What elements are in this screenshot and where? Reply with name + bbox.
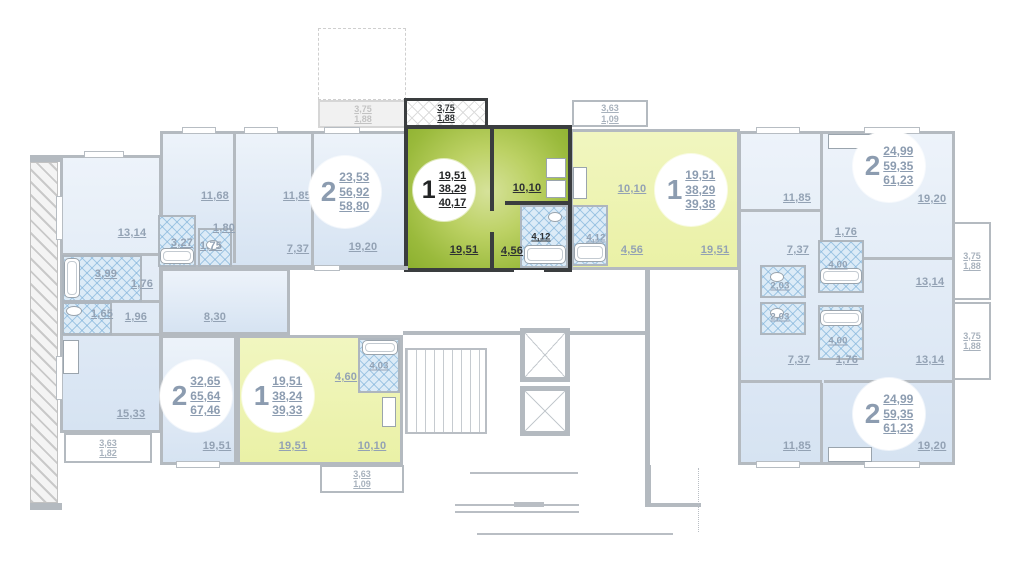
balcony-top-mid: 3,63 1,09 <box>572 100 648 127</box>
window <box>84 151 124 158</box>
balcony-left: 3,63 1,82 <box>64 433 152 463</box>
area-value: 58,80 <box>339 199 369 214</box>
area-value: 23,53 <box>339 170 369 185</box>
area-value: 19,51 <box>685 168 715 183</box>
window <box>756 461 800 468</box>
kitchen-unit <box>382 397 396 427</box>
area-value: 38,29 <box>685 183 715 198</box>
balcony-area-label: 1,88 <box>437 113 455 123</box>
area-label: 2,03 <box>770 281 789 292</box>
entrance-steps <box>477 533 673 535</box>
area-label: 10,10 <box>618 183 647 195</box>
bathtub-selected <box>524 245 566 264</box>
area-label: 1,76 <box>131 278 153 290</box>
area-label: 11,85 <box>783 192 811 204</box>
wall-segment-dark <box>490 129 494 211</box>
wall-segment <box>740 380 822 383</box>
area-label: 11,68 <box>201 190 229 202</box>
window <box>56 356 63 400</box>
wall-segment <box>645 268 650 465</box>
toilet <box>66 306 82 316</box>
area-label: 19,51 <box>279 440 308 452</box>
area-label: 7,37 <box>787 244 809 256</box>
balcony-right-bottom: 3,75 1,88 <box>953 302 991 380</box>
wall-segment-dark <box>490 232 494 268</box>
entrance-wall <box>645 465 651 507</box>
entrance-steps <box>470 472 578 474</box>
area-value: 59,35 <box>883 407 913 422</box>
area-label: 4,03 <box>369 361 388 372</box>
area-value: 67,46 <box>190 403 220 418</box>
area-label-selected: 19,51 <box>450 244 479 256</box>
area-label: 1,75 <box>200 240 222 252</box>
area-label: 4,56 <box>621 244 643 256</box>
floor-plan: 3,63 1,82 3,75 1,88 3,75 1,88 3,63 1,09 … <box>0 0 1024 569</box>
balcony-bottom: 3,63 1,09 <box>320 465 404 493</box>
area-label: 10,10 <box>358 440 387 452</box>
entrance-steps <box>455 511 579 513</box>
balcony-area-label: 1,88 <box>963 341 981 351</box>
apartment-badge-mid[interactable]: 1 19,51 38,29 39,38 <box>655 154 727 226</box>
area-value: 59,35 <box>883 159 913 174</box>
balcony-area-label: 1,88 <box>354 114 372 124</box>
entrance-door-swing <box>514 270 544 296</box>
area-label: 19,20 <box>918 193 947 205</box>
entrance-wall <box>645 503 701 507</box>
balcony-area-label: 3,63 <box>353 469 371 479</box>
area-label: 1,76 <box>835 226 857 238</box>
area-label-selected: 4,12 <box>531 232 550 243</box>
area-label: 4,60 <box>335 371 357 383</box>
bathtub <box>362 340 398 355</box>
balcony-area-label: 3,63 <box>601 103 619 113</box>
area-label: 4,00 <box>828 336 847 347</box>
balcony-area-label: 3,63 <box>99 438 117 448</box>
area-label-selected: 10,10 <box>513 182 542 194</box>
door-opening <box>314 265 340 271</box>
window <box>176 461 220 468</box>
area-label: 2,03 <box>770 312 789 323</box>
area-label: 1,76 <box>836 354 858 366</box>
stove <box>546 158 566 178</box>
area-value: 24,99 <box>883 392 913 407</box>
wall-segment <box>233 133 236 263</box>
area-label: 4,00 <box>828 260 847 271</box>
balcony-area-label: 3,75 <box>963 251 981 261</box>
area-label: 13,14 <box>916 276 945 288</box>
area-label: 3,27 <box>171 237 193 249</box>
balcony-area-label: 3,75 <box>963 331 981 341</box>
wall-segment <box>30 503 62 510</box>
area-label: 11,85 <box>283 190 311 202</box>
wall-segment <box>30 155 62 162</box>
balcony-area-label: 1,09 <box>353 479 371 489</box>
balcony-right-top: 3,75 1,88 <box>953 222 991 300</box>
area-label: 19,20 <box>349 241 378 253</box>
area-value: 39,38 <box>685 197 715 212</box>
area-label: 3,99 <box>95 268 117 280</box>
area-label: 13,14 <box>118 227 147 239</box>
area-label: 1,80 <box>213 222 235 234</box>
apartment-badge-selected[interactable]: 1 19,51 38,29 40,17 <box>413 159 475 221</box>
bathtub <box>160 248 194 264</box>
area-value: 19,51 <box>272 374 302 389</box>
area-label: 1,65 <box>91 308 113 320</box>
apartment-badge-top-right[interactable]: 2 24,99 59,35 61,23 <box>853 130 925 202</box>
rooms-count: 1 <box>254 382 270 410</box>
area-label: 19,20 <box>918 440 947 452</box>
area-value: 19,51 <box>439 170 467 183</box>
rooms-count: 2 <box>865 152 881 180</box>
area-label: 11,85 <box>783 440 811 452</box>
area-value: 39,33 <box>272 403 302 418</box>
balcony-area-label: 1,88 <box>963 261 981 271</box>
area-label-selected: 4,56 <box>501 245 523 257</box>
rooms-count: 1 <box>422 178 436 203</box>
staircase <box>405 348 487 434</box>
area-label: 8,30 <box>204 311 226 323</box>
elevator-shaft <box>520 328 570 382</box>
area-label: 13,14 <box>916 354 945 366</box>
area-label: 15,33 <box>117 408 146 420</box>
balcony-area-label: 1,82 <box>99 448 117 458</box>
bathtub <box>820 310 862 326</box>
apartment-badge-top-left[interactable]: 2 23,53 56,92 58,80 <box>309 156 381 228</box>
apartment-badge-bottom-mid[interactable]: 1 19,51 38,24 39,33 <box>242 360 314 432</box>
window <box>56 196 63 240</box>
wall-segment <box>820 383 823 463</box>
kitchen-unit <box>573 167 587 199</box>
unit-top-left-hall[interactable] <box>160 268 290 335</box>
area-value: 40,17 <box>439 197 467 210</box>
wall-segment <box>290 266 408 270</box>
rooms-count: 2 <box>321 178 337 206</box>
balcony-area-label: 1,09 <box>601 114 619 124</box>
balcony-area-label: 3,75 <box>437 103 455 113</box>
bathtub <box>574 243 606 262</box>
window <box>244 127 278 134</box>
balcony-area-label: 3,75 <box>354 104 372 114</box>
rooms-count: 2 <box>865 400 881 428</box>
area-value: 24,99 <box>883 144 913 159</box>
elevator-shaft <box>520 386 570 436</box>
entrance-steps <box>514 502 544 507</box>
area-label: 7,37 <box>287 243 309 255</box>
area-label: 19,51 <box>203 440 232 452</box>
rooms-count: 1 <box>667 176 683 204</box>
area-label: 1,96 <box>125 311 147 323</box>
rooms-count: 2 <box>172 382 188 410</box>
apartment-badge-bottom-right[interactable]: 2 24,99 59,35 61,23 <box>853 378 925 450</box>
area-label: 4,12 <box>586 233 605 244</box>
balcony-top-gray: 3,75 1,88 <box>318 100 408 128</box>
wall-segment <box>740 209 822 212</box>
window <box>756 127 800 134</box>
area-value: 38,29 <box>439 183 467 196</box>
apartment-badge-bottom-left[interactable]: 2 32,65 65,64 67,46 <box>160 360 232 432</box>
kitchen-unit <box>63 340 79 374</box>
area-value: 61,23 <box>883 173 913 188</box>
unit-outline-dashed <box>318 28 406 100</box>
window <box>324 127 360 134</box>
bathtub <box>64 258 80 298</box>
area-value: 32,65 <box>190 374 220 389</box>
area-value: 38,24 <box>272 389 302 404</box>
area-label: 7,37 <box>788 354 810 366</box>
area-label: 19,51 <box>701 244 730 256</box>
kitchen-sink <box>546 180 566 198</box>
area-value: 56,92 <box>339 185 369 200</box>
kitchen-unit <box>828 447 872 462</box>
entrance-dotted-line <box>698 468 699 532</box>
toilet-selected <box>548 212 562 222</box>
area-value: 61,23 <box>883 421 913 436</box>
window <box>182 127 216 134</box>
adjacent-section-hatch <box>30 162 58 503</box>
area-value: 65,64 <box>190 389 220 404</box>
balcony-selected: 3,75 1,88 <box>404 98 488 128</box>
window <box>864 461 920 468</box>
